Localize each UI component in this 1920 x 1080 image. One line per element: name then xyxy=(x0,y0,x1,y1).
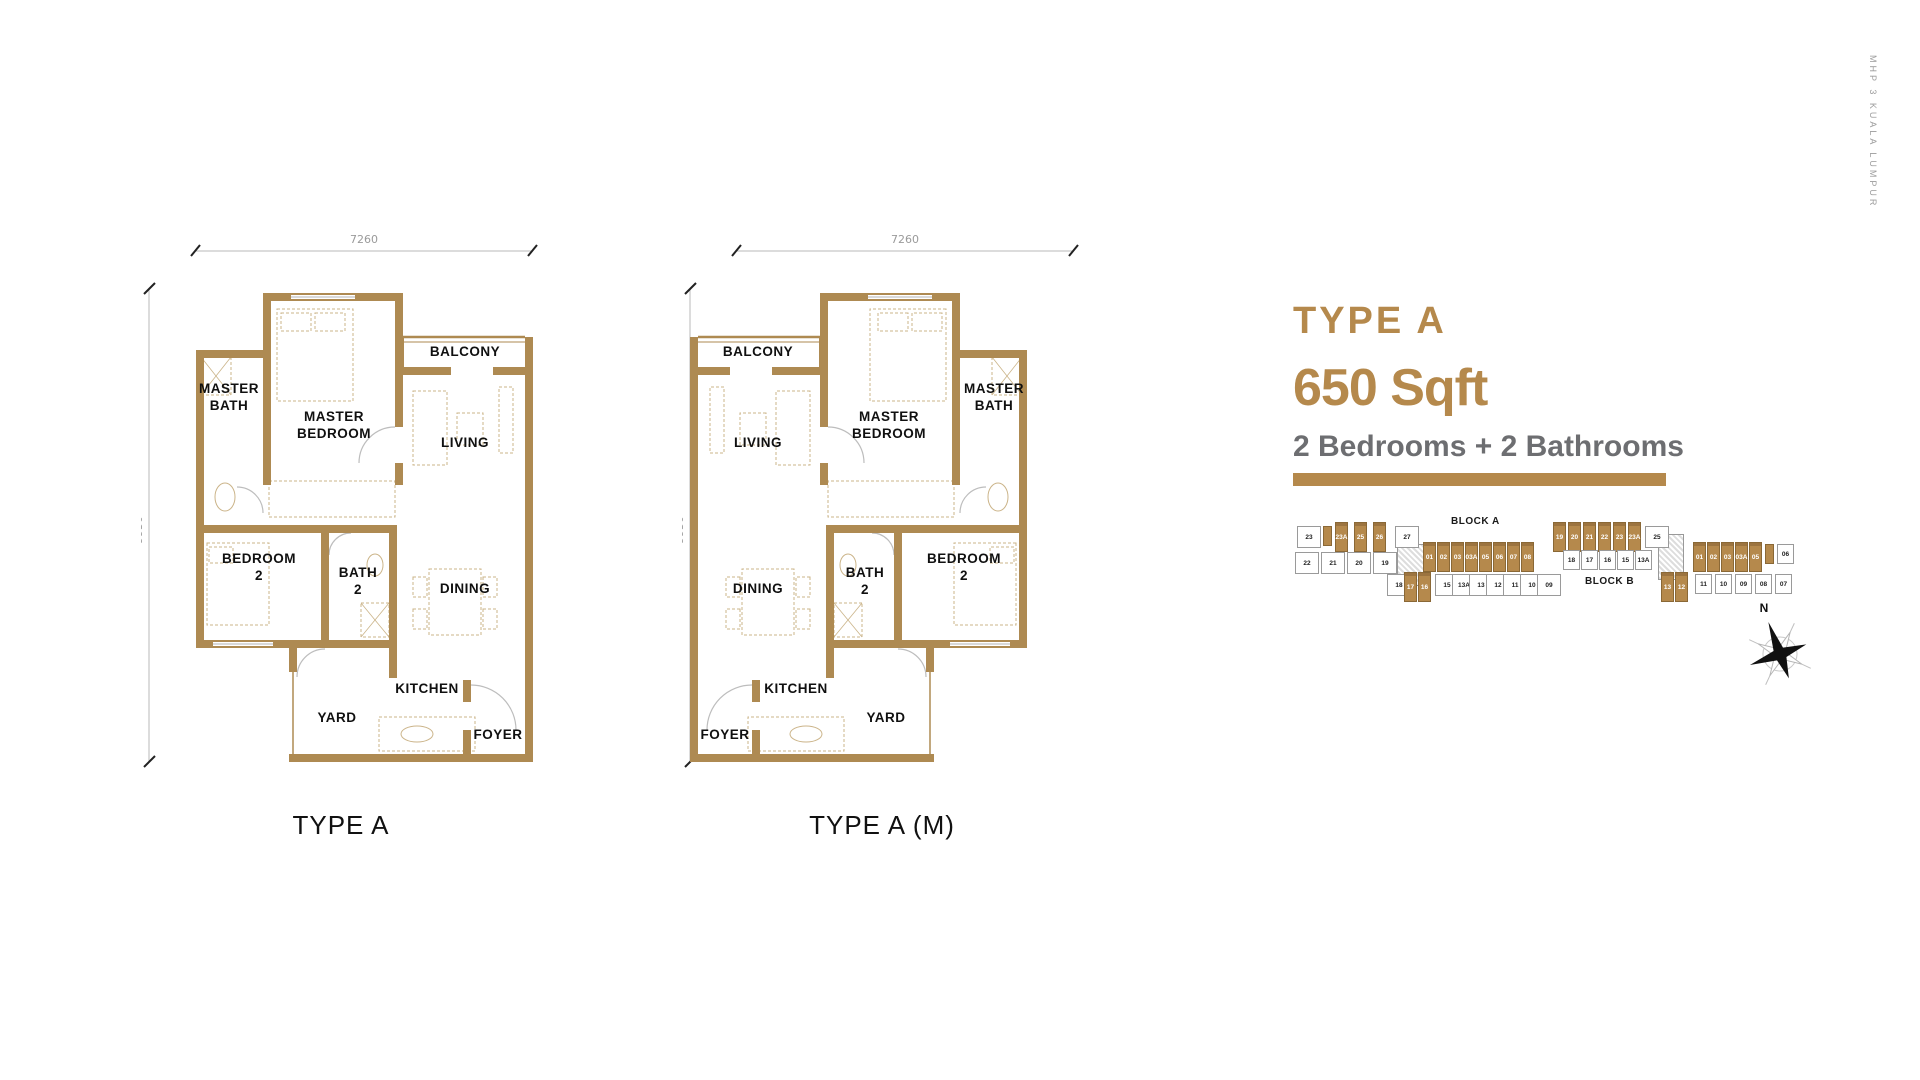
wall xyxy=(894,525,902,648)
brochure-page: 72609950MASTERBATHMASTERBEDROOMBALCONYLI… xyxy=(0,0,1920,1080)
dimension-top-label: 7260 xyxy=(350,233,378,246)
unit-20: 20 xyxy=(1568,522,1581,552)
furniture-outline xyxy=(315,313,345,331)
wall xyxy=(525,337,533,762)
room-label-yard: YARD xyxy=(866,710,905,725)
unit-03a: 03A xyxy=(1735,542,1748,572)
room-label-bath-2: BATH2 xyxy=(339,565,378,597)
wall xyxy=(952,350,1027,358)
wall xyxy=(289,640,297,672)
furniture-outline xyxy=(878,313,908,331)
furniture-outline xyxy=(912,313,942,331)
unit-23a: 23A xyxy=(1628,522,1641,552)
wall xyxy=(826,640,902,648)
wall xyxy=(389,640,397,678)
unit-22: 22 xyxy=(1295,552,1319,574)
wall xyxy=(321,640,397,648)
room-label-kitchen: KITCHEN xyxy=(764,681,828,696)
unit-11: 11 xyxy=(1695,574,1712,594)
unit-26: 26 xyxy=(1373,522,1386,552)
door-swing xyxy=(237,487,263,513)
wall xyxy=(321,525,329,648)
wall xyxy=(690,754,934,762)
room-label-master-bedroom: MASTERBEDROOM xyxy=(297,409,371,441)
unit-08: 08 xyxy=(1521,542,1534,572)
wall xyxy=(952,293,960,485)
unit-09: 09 xyxy=(1735,574,1752,594)
room-label-bath-2: BATH2 xyxy=(846,565,885,597)
furniture-outline xyxy=(429,569,481,635)
furniture-outline xyxy=(413,391,447,465)
unit-21: 21 xyxy=(1321,552,1345,574)
unit-19: 19 xyxy=(1373,552,1397,574)
wall xyxy=(894,525,1027,533)
unit-23a: 23A xyxy=(1335,522,1348,552)
unit-20: 20 xyxy=(1347,552,1371,574)
room-label-balcony: BALCONY xyxy=(430,344,500,359)
unit-03a: 03A xyxy=(1465,542,1478,572)
unit-01: 01 xyxy=(1423,542,1436,572)
wall xyxy=(263,293,271,485)
unit-02: 02 xyxy=(1707,542,1720,572)
compass-north-label: N xyxy=(1760,601,1769,615)
wall xyxy=(826,640,834,678)
unit-23: 23 xyxy=(1297,526,1321,548)
wall xyxy=(403,367,451,375)
unit-10: 10 xyxy=(1715,574,1732,594)
door-swing xyxy=(297,649,325,677)
dimension-left-label: 9950 xyxy=(682,516,686,544)
rooms-text: 2 Bedrooms + 2 Bathrooms xyxy=(1293,432,1684,462)
room-label-living: LIVING xyxy=(734,435,782,450)
plan-geometry xyxy=(196,293,533,762)
wall xyxy=(820,293,828,427)
furniture-outline xyxy=(413,577,427,597)
wall xyxy=(196,533,204,640)
unit-25: 25 xyxy=(1645,526,1669,548)
unit-01: 01 xyxy=(1693,542,1706,572)
fixture-outline xyxy=(790,726,822,742)
wall xyxy=(826,525,834,648)
lift-block xyxy=(1765,544,1774,564)
type-title: TYPE A xyxy=(1293,302,1447,340)
dimension-left-label: 9950 xyxy=(141,516,145,544)
furniture-outline xyxy=(379,717,475,751)
unit-06: 06 xyxy=(1777,544,1794,564)
lift-block xyxy=(1323,526,1332,546)
wall xyxy=(826,525,894,533)
unit-05: 05 xyxy=(1479,542,1492,572)
wall xyxy=(196,350,204,533)
wall xyxy=(196,525,329,533)
door-swing xyxy=(898,649,926,677)
room-label-kitchen: KITCHEN xyxy=(395,681,459,696)
unit-03: 03 xyxy=(1721,542,1734,572)
unit-06: 06 xyxy=(1493,542,1506,572)
project-side-text: MHP 3 KUALA LUMPUR xyxy=(1868,55,1878,208)
unit-25: 25 xyxy=(1354,522,1367,552)
wall xyxy=(772,367,820,375)
dimension-top-label: 7260 xyxy=(891,233,919,246)
wall xyxy=(1019,533,1027,640)
furniture-outline xyxy=(796,577,810,597)
floor-plan-a-m-caption: TYPE A (M) xyxy=(682,810,1082,841)
unit-16: 16 xyxy=(1599,550,1616,570)
wall xyxy=(926,640,934,672)
unit-23: 23 xyxy=(1613,522,1626,552)
wall xyxy=(752,680,760,702)
unit-13a: 13A xyxy=(1635,550,1652,570)
site-key-plan: BLOCK A BLOCK B 2323A2526272221201901020… xyxy=(1295,514,1807,614)
fixture-outline xyxy=(215,483,235,511)
block-a-label: BLOCK A xyxy=(1451,516,1500,527)
wall xyxy=(389,525,397,648)
unit-07: 07 xyxy=(1507,542,1520,572)
room-label-living: LIVING xyxy=(441,435,489,450)
door-swing xyxy=(872,533,894,555)
furniture-outline xyxy=(413,609,427,629)
furniture-outline xyxy=(269,481,395,517)
unit-27: 27 xyxy=(1395,526,1419,548)
wall xyxy=(1019,350,1027,533)
unit-02: 02 xyxy=(1437,542,1450,572)
wall xyxy=(752,730,760,762)
furniture-outline xyxy=(483,609,497,629)
plan-geometry xyxy=(690,293,1027,762)
wall xyxy=(690,337,698,762)
door-swing xyxy=(329,533,351,555)
fixture-outline xyxy=(401,726,433,742)
door-swing xyxy=(707,685,752,730)
floor-plan-type-a-m: 72609950MASTERBATHMASTERBEDROOMBALCONYLI… xyxy=(682,225,1082,770)
unit-05: 05 xyxy=(1749,542,1762,572)
wall xyxy=(196,350,271,358)
room-label-foyer: FOYER xyxy=(700,727,749,742)
unit-17: 17 xyxy=(1404,572,1417,602)
unit-18: 18 xyxy=(1563,550,1580,570)
unit-08: 08 xyxy=(1755,574,1772,594)
unit-07: 07 xyxy=(1775,574,1792,594)
wall xyxy=(395,463,403,485)
block-b-label: BLOCK B xyxy=(1585,576,1634,587)
room-label-yard: YARD xyxy=(317,710,356,725)
floor-plan-a-caption: TYPE A xyxy=(141,810,541,841)
unit-13: 13 xyxy=(1661,572,1674,602)
room-label-master-bath: MASTERBATH xyxy=(964,381,1024,413)
unit-22: 22 xyxy=(1598,522,1611,552)
unit-16: 16 xyxy=(1418,572,1431,602)
room-label-foyer: FOYER xyxy=(473,727,522,742)
wall xyxy=(329,525,397,533)
unit-21: 21 xyxy=(1583,522,1596,552)
furniture-outline xyxy=(499,387,513,453)
unit-19: 19 xyxy=(1553,522,1566,552)
compass-icon: N xyxy=(1740,598,1820,694)
door-swing xyxy=(960,487,986,513)
furniture-outline xyxy=(742,569,794,635)
furniture-outline xyxy=(776,391,810,465)
furniture-outline xyxy=(828,481,954,517)
unit-12: 12 xyxy=(1675,572,1688,602)
size-text: 650 Sqft xyxy=(1293,362,1487,414)
unit-03: 03 xyxy=(1451,542,1464,572)
furniture-outline xyxy=(281,313,311,331)
unit-15: 15 xyxy=(1617,550,1634,570)
unit-17: 17 xyxy=(1581,550,1598,570)
room-label-master-bath: MASTERBATH xyxy=(199,381,259,413)
furniture-outline xyxy=(748,717,844,751)
furniture-outline xyxy=(726,609,740,629)
furniture-outline xyxy=(796,609,810,629)
room-label-bedroom-2: BEDROOM2 xyxy=(927,551,1001,583)
room-label-balcony: BALCONY xyxy=(723,344,793,359)
room-label-master-bedroom: MASTERBEDROOM xyxy=(852,409,926,441)
room-label-dining: DINING xyxy=(733,581,783,596)
wall xyxy=(463,730,471,762)
fixture-outline xyxy=(988,483,1008,511)
wall xyxy=(463,680,471,702)
wall xyxy=(289,754,533,762)
door-swing xyxy=(471,685,516,730)
furniture-outline xyxy=(710,387,724,453)
accent-bar xyxy=(1293,473,1666,486)
floor-plan-type-a: 72609950MASTERBATHMASTERBEDROOMBALCONYLI… xyxy=(141,225,541,770)
unit-09: 09 xyxy=(1537,574,1561,596)
room-label-dining: DINING xyxy=(440,581,490,596)
wall xyxy=(820,463,828,485)
wall xyxy=(395,293,403,427)
room-label-bedroom-2: BEDROOM2 xyxy=(222,551,296,583)
